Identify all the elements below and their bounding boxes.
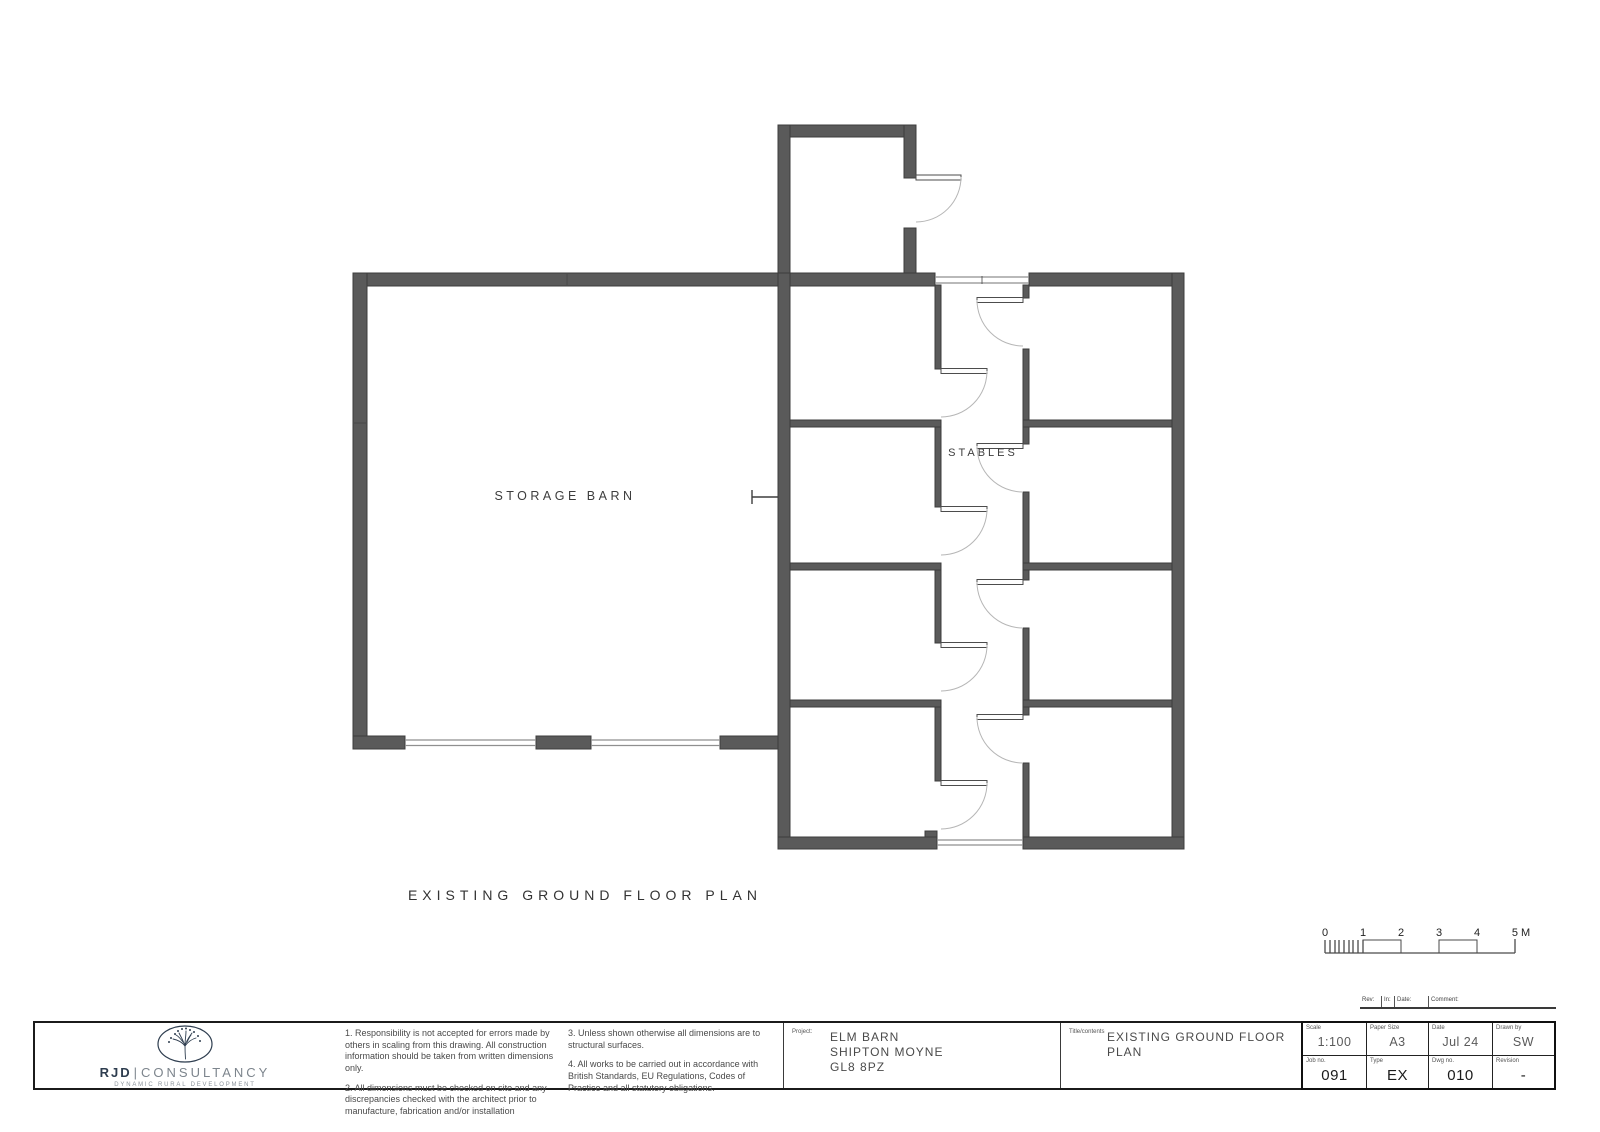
barn-left-wall bbox=[353, 273, 367, 749]
stables-outer-walls bbox=[778, 273, 1184, 849]
door-swing-arc bbox=[977, 717, 1023, 763]
scale-bar: 0 1 2 3 4 5 M bbox=[1322, 927, 1530, 953]
dwg-no-label: Dwg no. bbox=[1432, 1058, 1454, 1064]
stall-divider bbox=[790, 700, 941, 707]
dwg-no-value: 010 bbox=[1447, 1067, 1474, 1084]
scale-bar-segment bbox=[1439, 940, 1477, 953]
door-swing-arc bbox=[977, 300, 1023, 346]
corridor-left-wall bbox=[935, 570, 941, 643]
sheet-title-cell: Title/contents EXISTING GROUND FLOOR PLA… bbox=[1060, 1023, 1303, 1088]
floor-plan-svg: STORAGE BARN STABLES EXISTING GROUND FLO… bbox=[0, 0, 1600, 1132]
revision-col-in: In: bbox=[1381, 996, 1394, 1007]
top-room-right-wall bbox=[904, 125, 916, 178]
date-value: Jul 24 bbox=[1442, 1035, 1478, 1049]
stables-bottom-wall bbox=[1023, 837, 1184, 849]
tree-logo-icon bbox=[156, 1024, 214, 1064]
company-logo: RJD|CONSULTANCY DYNAMIC RURAL DEVELOPMEN… bbox=[55, 1023, 315, 1088]
scale-cell: Scale 1:100 bbox=[1303, 1023, 1366, 1055]
stables-right-wall bbox=[1172, 273, 1184, 849]
note-3: 3. Unless shown otherwise all dimensions… bbox=[568, 1028, 780, 1051]
project-address: ELM BARN SHIPTON MOYNE GL8 8PZ bbox=[830, 1030, 943, 1075]
drawing-sheet: STORAGE BARN STABLES EXISTING GROUND FLO… bbox=[0, 0, 1600, 1132]
revision-col-rev: Rev: bbox=[1360, 996, 1381, 1007]
door-leaf bbox=[941, 643, 987, 648]
stall-divider bbox=[790, 420, 941, 427]
scale-bar-tick-label: 1 bbox=[1360, 927, 1366, 939]
corridor-right-wall bbox=[1023, 427, 1029, 444]
stall-divider bbox=[1023, 563, 1172, 570]
note-4: 4. All works to be carried out in accord… bbox=[568, 1059, 780, 1094]
scale-label: Scale bbox=[1306, 1025, 1321, 1031]
corridor-right-wall bbox=[1023, 628, 1029, 700]
drawn-by-label: Drawn by bbox=[1496, 1025, 1521, 1031]
project-line-2: SHIPTON MOYNE bbox=[830, 1045, 943, 1060]
top-room bbox=[778, 125, 961, 285]
brand-separator: | bbox=[132, 1065, 141, 1080]
corridor-left-wall bbox=[935, 285, 941, 369]
door-swing-arc bbox=[916, 177, 961, 222]
revision-label: Revision bbox=[1496, 1058, 1519, 1064]
corridor-right-wall bbox=[1023, 492, 1029, 563]
door-swing-arc bbox=[941, 509, 987, 555]
scale-bar-segment bbox=[1363, 940, 1401, 953]
corridor-right-wall bbox=[1023, 763, 1029, 837]
plan-caption: EXISTING GROUND FLOOR PLAN bbox=[408, 887, 762, 903]
dwg-no-cell: Dwg no. 010 bbox=[1428, 1055, 1492, 1088]
scale-bar-tick-label: 0 bbox=[1322, 927, 1328, 939]
scale-value: 1:100 bbox=[1318, 1035, 1352, 1049]
door-swing-arc bbox=[941, 783, 987, 829]
barn-bottom-wall-stub bbox=[536, 736, 591, 749]
stables-top-wall bbox=[1029, 273, 1184, 286]
note-1: 1. Responsibility is not accepted for er… bbox=[345, 1028, 565, 1075]
door-leaf bbox=[941, 781, 987, 786]
stables-bottom-wall bbox=[778, 837, 937, 849]
paper-size-cell: Paper Size A3 bbox=[1366, 1023, 1428, 1055]
brand-name-bold: RJD bbox=[100, 1065, 132, 1080]
top-room-left-wall bbox=[778, 125, 790, 285]
type-value: EX bbox=[1387, 1067, 1408, 1084]
date-label: Date bbox=[1432, 1025, 1445, 1031]
paper-size-value: A3 bbox=[1389, 1035, 1405, 1049]
brand-name: RJD|CONSULTANCY bbox=[100, 1065, 271, 1080]
stall-divider bbox=[1023, 420, 1172, 427]
sheet-title-text: EXISTING GROUND FLOOR PLAN bbox=[1107, 1030, 1285, 1060]
notes-column-1: 1. Responsibility is not accepted for er… bbox=[345, 1028, 565, 1093]
corridor-left-wall bbox=[935, 707, 941, 781]
storage-barn-room bbox=[353, 273, 778, 749]
barn-bottom-wall-stub bbox=[353, 736, 405, 749]
note-2: 2. All dimensions must be checked on sit… bbox=[345, 1083, 565, 1118]
scale-bar-tick-label: 4 bbox=[1474, 927, 1480, 939]
door-leaf bbox=[916, 175, 961, 180]
scale-bar-hatches bbox=[1325, 940, 1363, 953]
project-line-3: GL8 8PZ bbox=[830, 1060, 943, 1075]
scale-bar-tick-label: 3 bbox=[1436, 927, 1442, 939]
stall-doors-right bbox=[977, 298, 1023, 764]
project-label: Project: bbox=[792, 1029, 812, 1035]
door-leaf bbox=[977, 298, 1023, 303]
paper-size-label: Paper Size bbox=[1370, 1025, 1399, 1031]
stall-divider bbox=[1023, 700, 1172, 707]
door-swing-arc bbox=[977, 582, 1023, 628]
corridor-right-wall bbox=[1023, 285, 1029, 298]
sheet-title-label: Title/contents bbox=[1069, 1029, 1104, 1035]
job-no-label: Job no. bbox=[1306, 1058, 1326, 1064]
barn-top-wall bbox=[353, 273, 778, 286]
revision-col-comment: Comment: bbox=[1428, 996, 1556, 1007]
door-swing-arc bbox=[941, 371, 987, 417]
corridor-walls bbox=[935, 285, 1029, 837]
revision-cell: Revision - bbox=[1492, 1055, 1554, 1088]
sheet-title-line-2: PLAN bbox=[1107, 1045, 1285, 1060]
door-swing-arc bbox=[941, 645, 987, 691]
corridor-right-wall bbox=[1023, 570, 1029, 580]
door-leaf bbox=[941, 369, 987, 374]
project-cell: Project: ELM BARN SHIPTON MOYNE GL8 8PZ bbox=[783, 1023, 1060, 1088]
job-no-value: 091 bbox=[1321, 1067, 1348, 1084]
scale-bar-tick-label: 2 bbox=[1398, 927, 1404, 939]
project-line-1: ELM BARN bbox=[830, 1030, 943, 1045]
barn-bottom-wall-stub bbox=[720, 736, 778, 749]
stables-left-wall bbox=[778, 273, 790, 849]
door-leaf bbox=[977, 715, 1023, 720]
drawn-by-value: SW bbox=[1513, 1035, 1534, 1049]
stables-label: STABLES bbox=[948, 447, 1018, 459]
stall-divider bbox=[790, 563, 941, 570]
corridor-right-wall bbox=[1023, 349, 1029, 420]
top-room-top-wall bbox=[778, 125, 916, 137]
revision-strip: Rev: In: Date: Comment: bbox=[1360, 996, 1556, 1009]
stall-divider-walls bbox=[790, 420, 1172, 707]
revision-value: - bbox=[1521, 1067, 1527, 1084]
date-cell: Date Jul 24 bbox=[1428, 1023, 1492, 1055]
door-jamb-stub bbox=[925, 831, 937, 837]
drawn-by-cell: Drawn by SW bbox=[1492, 1023, 1554, 1055]
type-label: Type bbox=[1370, 1058, 1383, 1064]
drawing-data-grid: Scale 1:100 Paper Size A3 Date Jul 24 Dr… bbox=[1301, 1021, 1556, 1090]
brand-name-rest: CONSULTANCY bbox=[141, 1065, 270, 1080]
revision-col-date: Date: bbox=[1394, 996, 1428, 1007]
storage-barn-label: STORAGE BARN bbox=[494, 489, 635, 503]
door-leaf bbox=[941, 507, 987, 512]
notes-column-2: 3. Unless shown otherwise all dimensions… bbox=[568, 1028, 780, 1093]
sheet-title-line-1: EXISTING GROUND FLOOR bbox=[1107, 1030, 1285, 1045]
job-no-cell: Job no. 091 bbox=[1303, 1055, 1366, 1088]
scale-bar-tick-label: 5 M bbox=[1512, 927, 1530, 939]
corridor-left-wall bbox=[935, 427, 941, 507]
type-cell: Type EX bbox=[1366, 1055, 1428, 1088]
stables-top-wall bbox=[778, 273, 935, 286]
corridor-right-wall bbox=[1023, 707, 1029, 715]
brand-tagline: DYNAMIC RURAL DEVELOPMENT bbox=[114, 1082, 255, 1088]
door-leaf bbox=[977, 580, 1023, 585]
